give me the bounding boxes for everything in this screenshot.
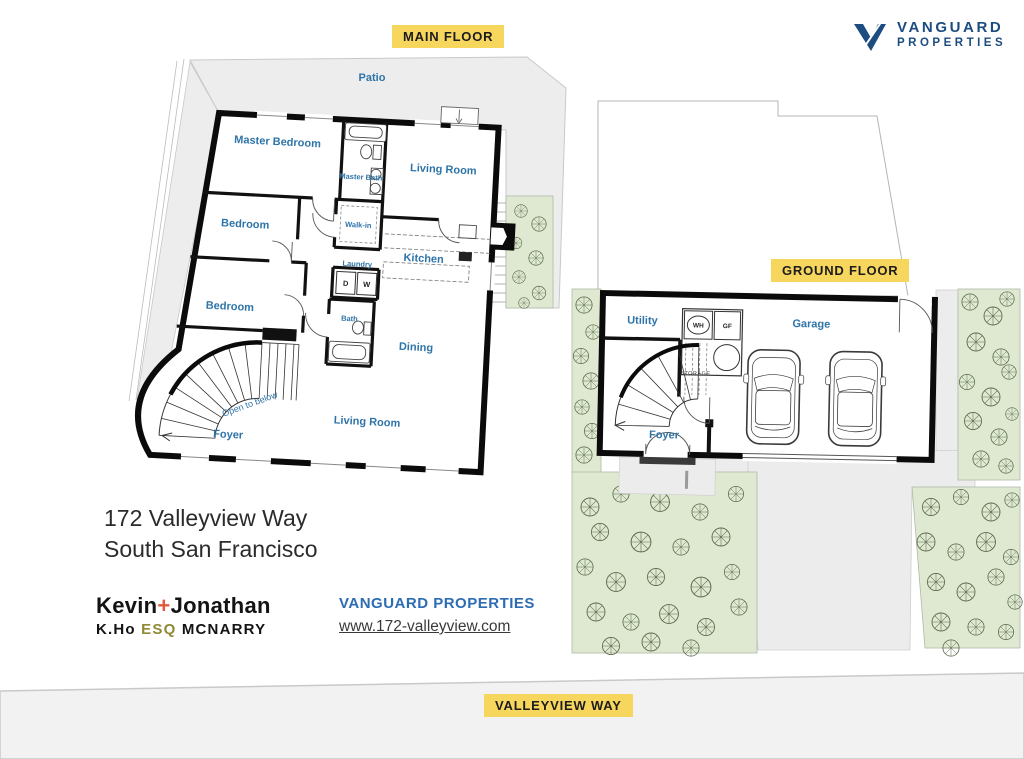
tree-icon — [577, 559, 593, 575]
dining-label: Dining — [399, 341, 434, 355]
kitchen-label: Kitchen — [403, 252, 444, 266]
tree-icon — [583, 373, 599, 389]
tree-icon — [591, 523, 608, 540]
entry-stoop — [441, 107, 479, 125]
tree-icon — [943, 640, 959, 656]
walk-in-label: Walk-in — [345, 220, 372, 230]
tree-icon — [575, 400, 589, 414]
tree-icon — [964, 412, 981, 429]
tree-icon — [991, 429, 1007, 445]
tree-icon — [977, 533, 996, 552]
tree-icon — [982, 503, 1000, 521]
utility-label: Utility — [627, 315, 659, 328]
logo-line2: PROPERTIES — [897, 38, 1006, 50]
tree-icon — [984, 307, 1002, 325]
utility-closet — [681, 309, 742, 376]
tree-icon — [731, 599, 747, 615]
ground-foyer-label: Foyer — [649, 429, 680, 442]
tree-icon — [673, 539, 689, 555]
agent-plus: + — [157, 593, 170, 618]
tree-icon — [917, 533, 935, 551]
property-address: 172 Valleyview Way South San Francisco — [104, 503, 318, 565]
tree-icon — [586, 325, 600, 339]
agent-first-name: Kevin — [96, 593, 157, 618]
garage-label: Garage — [792, 318, 830, 331]
tree-icon — [519, 298, 530, 309]
tree-icon — [576, 297, 592, 313]
address-line1: 172 Valleyview Way — [104, 503, 318, 534]
website-link[interactable]: www.172-valleyview.com — [339, 618, 535, 636]
bedroom-lower-label: Bedroom — [205, 300, 254, 315]
tree-icon — [607, 573, 626, 592]
tree-icon — [988, 569, 1004, 585]
tree-icon — [1000, 292, 1014, 306]
patio-label: Patio — [359, 72, 386, 84]
tree-icon — [973, 451, 989, 467]
bath-label: Bath — [341, 314, 359, 324]
tree-icon — [724, 564, 739, 579]
main-floor-tag: MAIN FLOOR — [392, 25, 504, 48]
agent-lastname: MCNARRY — [182, 621, 267, 638]
tree-icon — [1003, 549, 1018, 564]
agent-broker: K.Ho — [96, 621, 136, 638]
tree-icon — [529, 251, 543, 265]
tree-icon — [932, 613, 950, 631]
main-garden-strip — [506, 196, 553, 308]
tree-icon — [957, 583, 975, 601]
tree-icon — [1002, 365, 1016, 379]
tree-icon — [642, 633, 660, 651]
tree-icon — [1008, 595, 1022, 609]
tree-icon — [999, 459, 1013, 473]
tree-icon — [581, 498, 599, 516]
tree-icon — [651, 493, 670, 512]
tree-icon — [623, 614, 639, 630]
tree-icon — [697, 618, 714, 635]
tree-icon — [515, 205, 528, 218]
logo-line1: VANGUARD — [897, 20, 1006, 35]
tree-icon — [692, 504, 708, 520]
agent-esq: ESQ — [141, 621, 176, 638]
dryer-label: D — [343, 279, 349, 288]
tree-icon — [712, 528, 730, 546]
tree-icon — [968, 619, 984, 635]
tree-icon — [728, 486, 743, 501]
footer-brand: VANGUARD PROPERTIES www.172-valleyview.c… — [339, 595, 535, 636]
ground-floor-tag: GROUND FLOOR — [771, 259, 909, 282]
tree-icon — [631, 532, 651, 552]
agent-second-name: Jonathan — [171, 593, 271, 618]
address-line2: South San Francisco — [104, 534, 318, 565]
tree-icon — [532, 217, 546, 231]
agents-logo: Kevin+Jonathan K.Ho ESQ MCNARRY — [96, 594, 271, 638]
tree-icon — [982, 388, 1000, 406]
tree-icon — [959, 374, 974, 389]
gf-label: GF — [723, 323, 732, 330]
street-tag: VALLEYVIEW WAY — [484, 694, 633, 717]
laundry-label: Laundry — [342, 259, 373, 270]
ground-floor-plan: WH GF STORAGE Utility — [565, 95, 1024, 660]
flyer-page: Patio — [0, 0, 1024, 759]
foyer-label: Foyer — [213, 428, 244, 442]
tree-icon — [1005, 493, 1019, 507]
tree-icon — [967, 333, 985, 351]
tree-icon — [691, 577, 711, 597]
vanguard-logo: VANGUARD PROPERTIES — [852, 20, 1006, 52]
tree-icon — [922, 498, 939, 515]
tree-icon — [573, 348, 588, 363]
tree-icon — [948, 544, 964, 560]
tree-icon — [576, 447, 592, 463]
tree-icon — [927, 573, 944, 590]
tree-icon — [962, 294, 978, 310]
tree-icon — [1006, 408, 1019, 421]
tree-icon — [587, 603, 605, 621]
footer-company: VANGUARD PROPERTIES — [339, 595, 535, 612]
tree-icon — [602, 637, 619, 654]
tree-icon — [513, 271, 526, 284]
tree-icon — [993, 349, 1009, 365]
main-floor-plan: Patio — [100, 50, 570, 480]
vanguard-logo-icon — [852, 20, 890, 52]
wh-label: WH — [693, 322, 704, 329]
tree-icon — [683, 640, 699, 656]
tree-icon — [998, 624, 1013, 639]
tree-icon — [660, 605, 679, 624]
tree-icon — [532, 286, 546, 300]
bedroom-mid-label: Bedroom — [221, 217, 270, 232]
tree-icon — [953, 489, 968, 504]
tree-icon — [647, 568, 664, 585]
